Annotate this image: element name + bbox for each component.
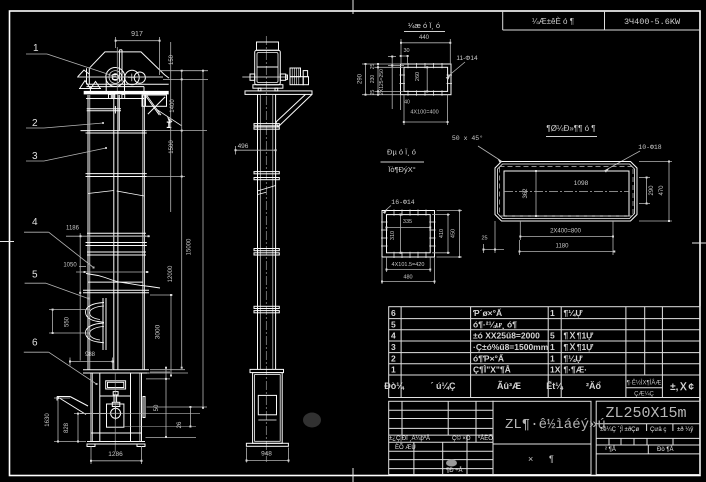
svg-text:470: 470 [659,185,665,196]
svg-text:10-Φ18: 10-Φ18 [638,144,662,151]
svg-text:16-Φ14: 16-Φ14 [391,199,415,206]
svg-text:3: 3 [391,342,396,352]
svg-text:1630: 1630 [45,413,51,427]
svg-text:2X400=800: 2X400=800 [550,229,582,235]
svg-text:260: 260 [415,72,421,81]
svg-text:ó¶Ƥ×°Ấ: ó¶Ƥ×°Ấ [473,353,504,363]
svg-text:230: 230 [370,75,376,84]
svg-text:290: 290 [649,185,655,196]
svg-text:² ¶Å: ² ¶Å [605,446,616,453]
svg-text:Ç© ×Ö: Ç© ×Ö [452,435,471,442]
svg-text:1: 1 [550,308,555,318]
svg-text:40: 40 [404,100,410,106]
svg-text:3: 3 [32,151,38,162]
svg-text:¶·¶Æ·: ¶·¶Æ· [564,365,588,375]
svg-text:ÇÆ¼Ç: ÇÆ¼Ç [634,392,654,398]
svg-text:5: 5 [550,331,555,341]
svg-text:1050: 1050 [63,263,77,269]
svg-text:362: 362 [523,188,529,199]
svg-text:¼æ ó Ï¸ ó: ¼æ ó Ï¸ ó [408,21,440,30]
svg-text:25: 25 [370,64,376,70]
svg-text:1500: 1500 [169,140,175,154]
svg-text:440: 440 [419,35,430,41]
svg-text:ó¶·²¼ư¸ ó¶: ó¶·²¼ư¸ ó¶ [473,319,517,329]
svg-text:Ðµ ó Ï¸ ó: Ðµ ó Ï¸ ó [387,148,416,157]
svg-text:496: 496 [238,143,249,150]
svg-text:ÈÕ ÆÚ: ÈÕ ÆÚ [395,444,416,451]
svg-text:1: 1 [391,365,396,375]
svg-text:¶·Ê½ÌX¶ÌÅÆ: ¶·Ê½ÌX¶ÌÅÆ [627,379,662,387]
svg-text:550: 550 [65,316,71,327]
svg-text:1: 1 [33,43,39,54]
svg-text:¶Ð ÷Å: ¶Ð ÷Å [446,467,463,474]
svg-text:Ïò¶ÐýX°: Ïò¶ÐýX° [388,165,415,174]
svg-text:±¿Ç|Ðî ¸Ä¼þºÅ: ±¿Ç|Ðî ¸Ä¼þºÅ [389,435,430,442]
svg-text:1: 1 [550,342,555,352]
svg-text:±,Ｘ¢: ±,Ｘ¢ [670,381,694,393]
svg-text:450: 450 [451,229,457,238]
svg-text:±ó XX25ű8=2000: ±ó XX25ű8=2000 [473,331,540,341]
svg-text:ºÅÈÕ: ºÅÈÕ [478,435,493,442]
svg-text:1400: 1400 [170,99,176,113]
svg-text:1186: 1186 [66,226,80,232]
svg-text:15000: 15000 [187,238,193,255]
svg-text:±ð ¼ỷ: ±ð ¼ỷ [677,426,693,433]
svg-text:988: 988 [85,352,96,358]
svg-text:6: 6 [391,308,396,318]
svg-text:6: 6 [32,338,38,349]
svg-text:1: 1 [550,353,555,363]
svg-text:50 x 45°: 50 x 45° [452,134,483,142]
svg-text:Çưä ç: Çưä ç [650,427,666,433]
svg-text:²Äổ: ²Äổ [586,381,601,391]
svg-text:Ç¶Ì"X"¶Å: Ç¶Ì"X"¶Å [473,365,511,375]
svg-text:12000: 12000 [168,265,174,282]
svg-text:4: 4 [32,217,38,228]
svg-text:¼Æ±êÈ ó ¶: ¼Æ±êÈ ó ¶ [532,17,574,26]
svg-text:410: 410 [439,229,445,238]
svg-text:¶: ¶ [549,454,554,464]
svg-text:1098: 1098 [574,180,589,187]
svg-text:3Ч400-5.6KW: 3Ч400-5.6KW [624,17,681,27]
svg-text:·Ç±ó%ű8=1500mm: ·Ç±ó%ű8=1500mm [473,342,549,352]
svg-text:25: 25 [481,236,487,242]
svg-text:1286: 1286 [108,451,123,458]
svg-text:3000: 3000 [155,324,162,339]
svg-text:¶Ｘ¶1Ự: ¶Ｘ¶1Ự [564,331,595,341]
svg-text:50: 50 [154,404,160,411]
svg-text:150: 150 [169,54,175,65]
svg-text:Ðò ¶Å: Ðò ¶Å [657,446,674,453]
svg-text:948: 948 [261,451,272,458]
svg-text:1X: 1X [550,365,561,375]
svg-text:2: 2 [391,353,396,363]
svg-text:25: 25 [370,90,376,96]
svg-text:335: 335 [403,219,412,225]
svg-text:4: 4 [391,331,396,341]
svg-text:4X100=400: 4X100=400 [410,110,438,116]
svg-text:1180: 1180 [556,244,570,250]
svg-text:480: 480 [403,275,412,281]
svg-text:Ãû³Æ: Ãû³Æ [497,381,521,391]
svg-text:11-Φ14: 11-Φ14 [456,55,478,62]
svg-text:ZL250X15m: ZL250X15m [605,405,686,422]
svg-text:2: 2 [32,118,38,129]
svg-text:290: 290 [358,73,364,84]
svg-text:´ ú¼Ç: ´ ú¼Ç [430,381,456,391]
svg-text:4X101.5=420: 4X101.5=420 [392,262,425,268]
svg-text:5: 5 [391,319,396,329]
svg-text:ZL¶·ê½ìáéý»ú: ZL¶·ê½ìáéý»ú [505,417,606,433]
svg-text:¶¼Ự: ¶¼Ự [564,353,584,363]
svg-text:5: 5 [32,270,38,281]
svg-text:¶Ø¼Ð»¶¶ ó ¶: ¶Ø¼Ð»¶¶ ó ¶ [546,124,595,133]
svg-text:310: 310 [390,231,396,240]
svg-text:30: 30 [403,48,409,54]
svg-text:¶¼Ự: ¶¼Ự [564,308,584,318]
svg-text:2X125=250: 2X125=250 [379,69,385,95]
svg-text:±ê¼Ç ´¦Ì ±ðÇø: ±ê¼Ç ´¦Ì ±ðÇø [600,426,639,433]
svg-text:Ðò¼: Ðò¼ [384,381,405,391]
svg-text:Ƥ´ø×°Ấ: Ƥ´ø×°Ấ [473,308,502,318]
svg-text:×: × [528,454,533,464]
svg-text:Ết¼: Ết¼ [546,381,564,391]
svg-text:26: 26 [177,421,183,428]
svg-text:¶Ｘ¶1Ự: ¶Ｘ¶1Ự [564,342,595,352]
svg-text:917: 917 [131,31,143,38]
svg-text:828: 828 [64,422,70,433]
